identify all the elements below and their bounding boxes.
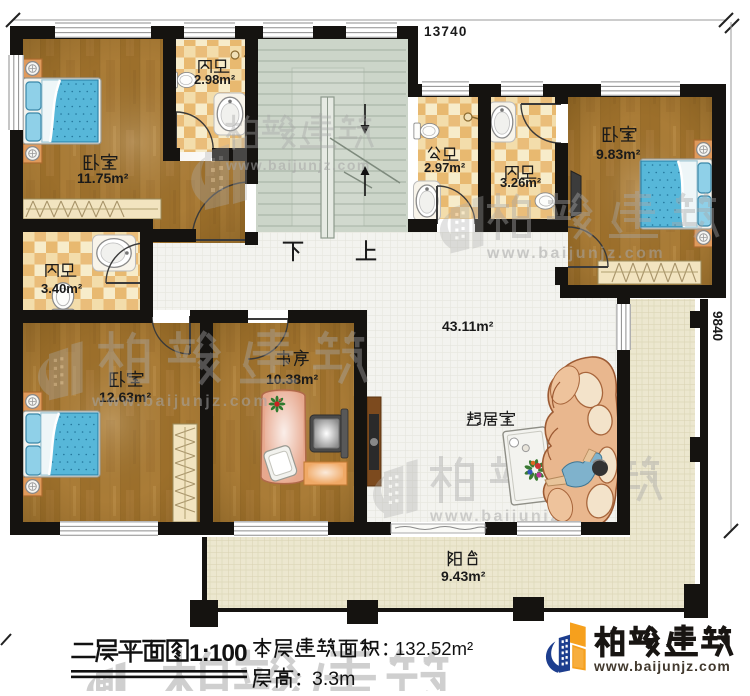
svg-text:www.baijunjz.com: www.baijunjz.com	[593, 658, 731, 674]
svg-text:3.26m²: 3.26m²	[500, 175, 542, 190]
svg-text:www.baijunjz.com: www.baijunjz.com	[225, 157, 371, 173]
svg-text:：: ：	[294, 669, 313, 690]
svg-text:3.40m²: 3.40m²	[41, 281, 83, 296]
svg-text:www.baijunjz.com: www.baijunjz.com	[91, 393, 270, 410]
svg-text:1:100: 1:100	[189, 640, 247, 667]
svg-text:9.83m²: 9.83m²	[596, 146, 641, 162]
svg-text:9.43m²: 9.43m²	[441, 568, 486, 584]
svg-text:11.75m²: 11.75m²	[77, 170, 129, 186]
svg-text:2.98m²: 2.98m²	[194, 72, 236, 87]
svg-text:9840: 9840	[710, 311, 725, 341]
svg-text:3.3m: 3.3m	[312, 668, 355, 690]
svg-text:2.97m²: 2.97m²	[424, 160, 466, 175]
svg-text:13740: 13740	[424, 24, 468, 39]
svg-text:132.52m²: 132.52m²	[395, 638, 473, 659]
svg-text:43.11m²: 43.11m²	[442, 318, 494, 334]
svg-text:www.baijunjz.com: www.baijunjz.com	[486, 245, 665, 262]
